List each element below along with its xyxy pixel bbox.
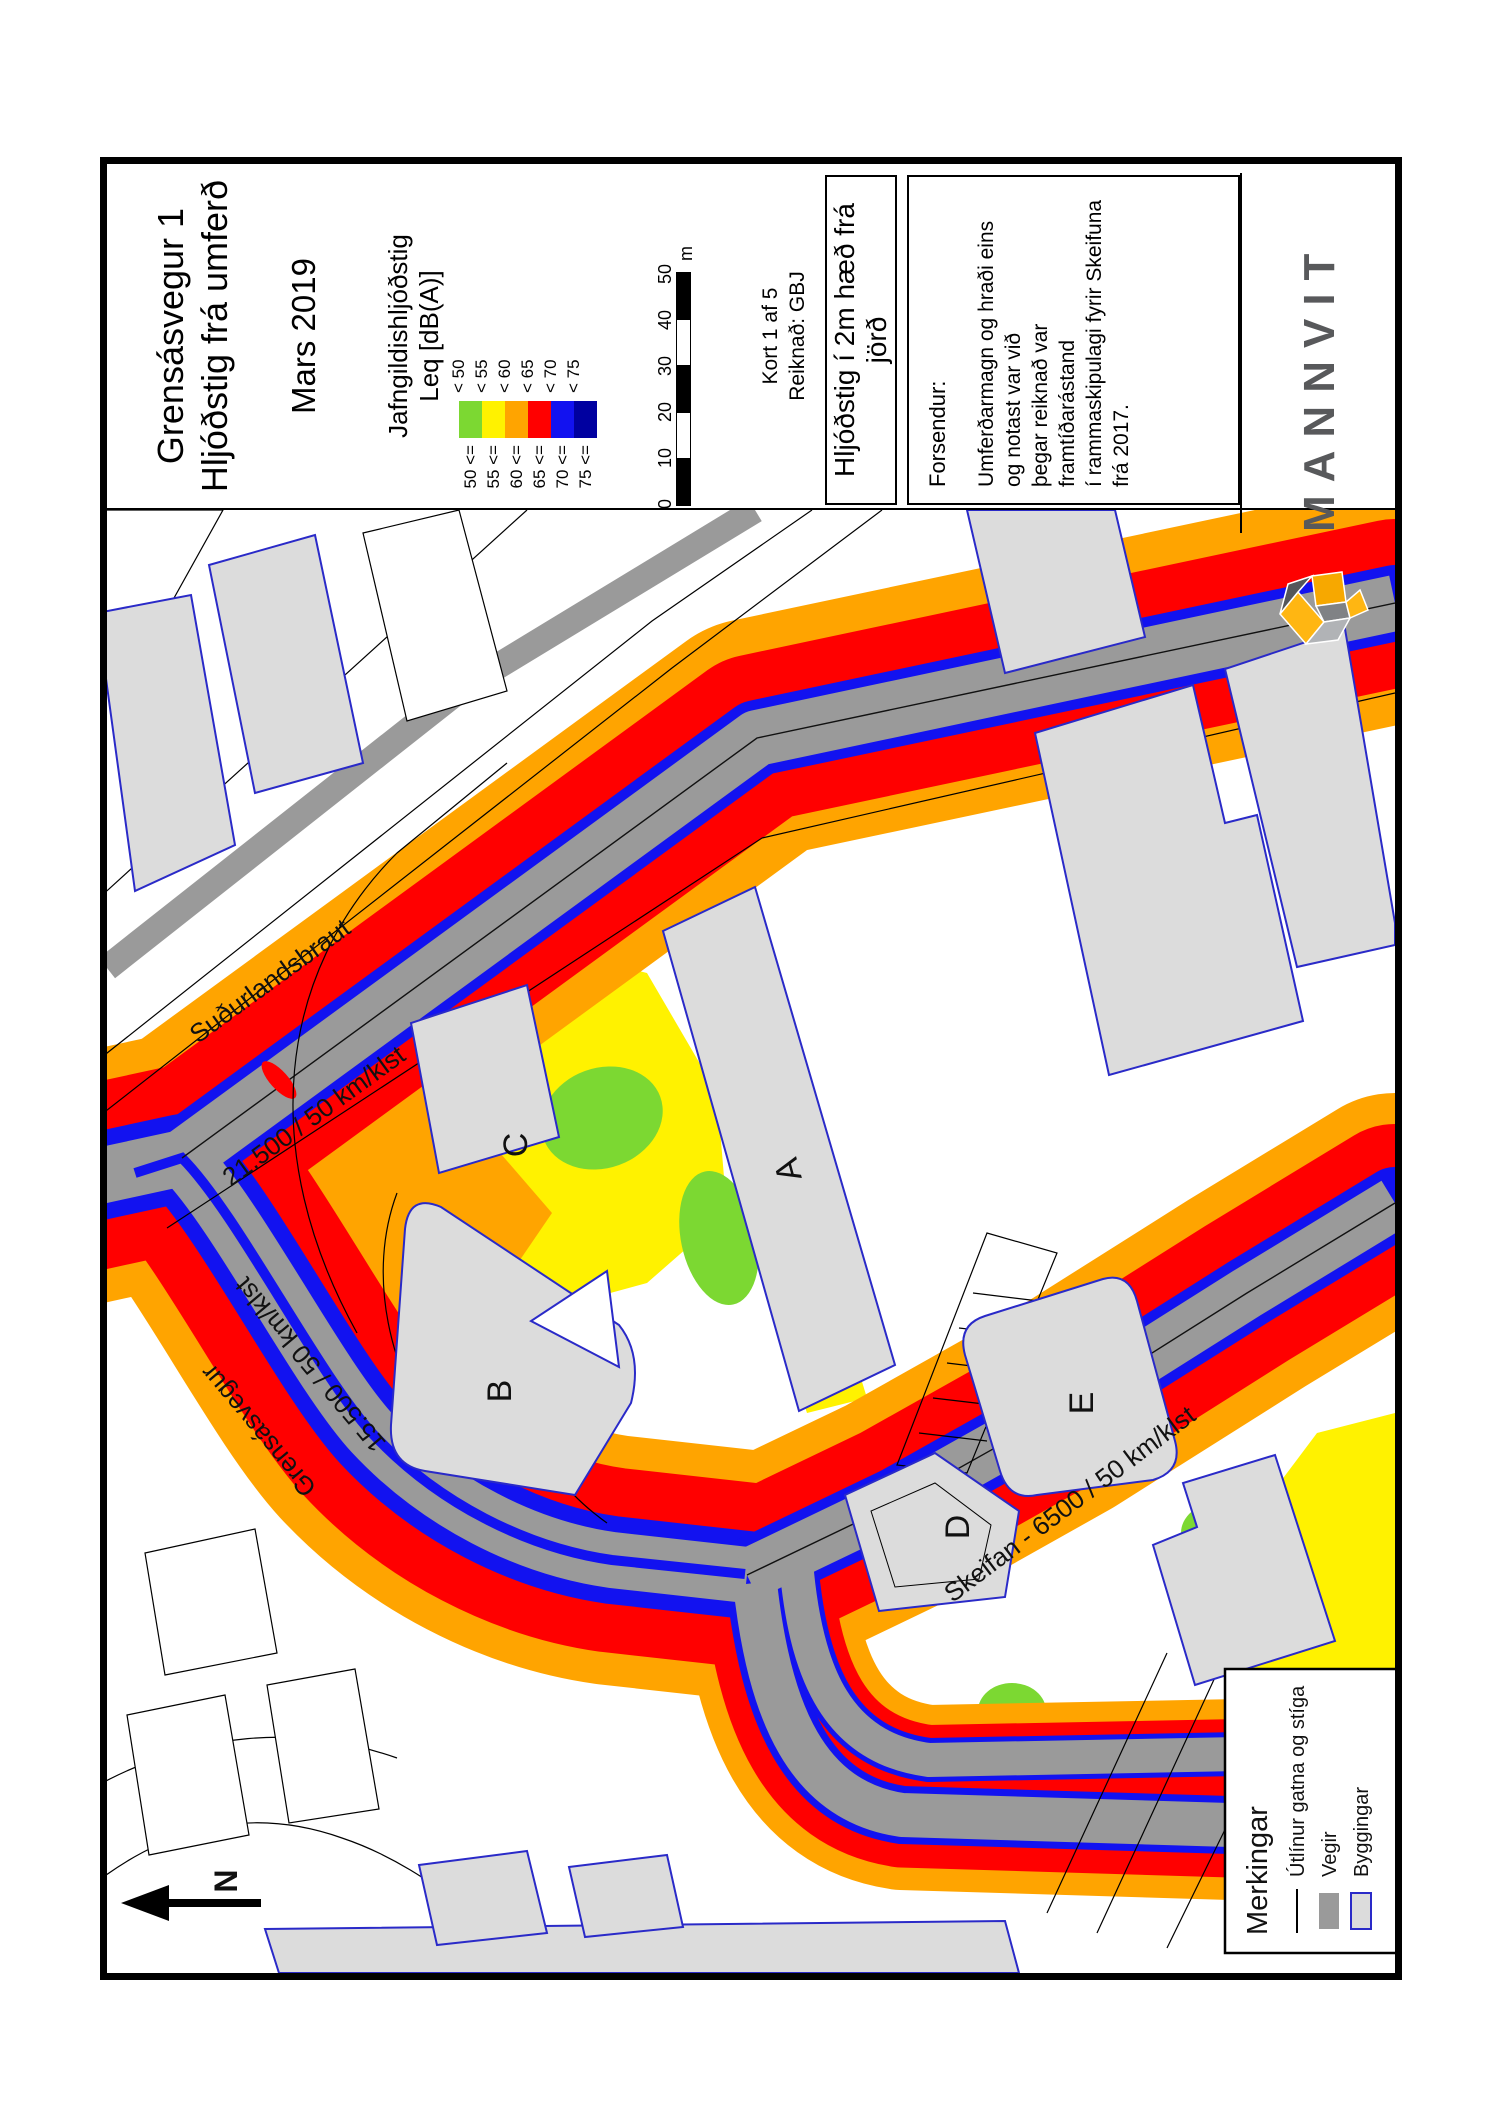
road-symbol-icon bbox=[1319, 1893, 1339, 1929]
legend-swatch bbox=[505, 401, 528, 438]
info-panel: Grensásvegur 1 Hljóðstig frá umferð Mars… bbox=[107, 164, 1395, 510]
scale-tick: 50 bbox=[655, 264, 676, 284]
scale-unit: m bbox=[676, 246, 697, 261]
legend-upper-label: < 55 bbox=[472, 359, 492, 401]
legend-lower-label: 70 <= bbox=[553, 438, 573, 508]
scale-tick: 10 bbox=[655, 448, 676, 468]
legend-upper-label: < 50 bbox=[449, 359, 469, 401]
legend-swatch bbox=[574, 401, 597, 438]
scale-segment bbox=[677, 458, 690, 505]
legend-upper-label: < 70 bbox=[541, 359, 561, 401]
sheet-frame: Suðurlandsbraut 21.500 / 50 km/klst Gren… bbox=[100, 157, 1402, 1980]
legend-upper-label: < 60 bbox=[495, 359, 515, 401]
assumptions-box: Forsendur: Umferðarmagn og hraði eins og… bbox=[907, 175, 1240, 505]
legend-title-line1: Jafngildishljóðstig bbox=[383, 164, 414, 508]
legend-lower-label: 50 <= bbox=[461, 438, 481, 508]
map-key-item-buildings: Byggingar bbox=[1351, 1787, 1373, 1877]
scale-ticks: 0 10 20 30 40 50 bbox=[655, 166, 673, 506]
legend-swatch bbox=[482, 401, 505, 438]
noise-legend: 50 <= < 50 55 <= < 55 60 <= < 60 65 <= <… bbox=[459, 164, 597, 508]
scale-tick: 40 bbox=[655, 310, 676, 330]
noise-map-canvas: Suðurlandsbraut 21.500 / 50 km/klst Gren… bbox=[107, 510, 1395, 1973]
legend-row: 50 <= < 50 bbox=[459, 164, 482, 508]
scale-tick: 0 bbox=[655, 499, 676, 509]
label-building-D: D bbox=[939, 1515, 977, 1540]
legend-swatch bbox=[528, 401, 551, 438]
scale-segment bbox=[677, 319, 690, 366]
building-symbol-icon bbox=[1351, 1893, 1371, 1929]
north-arrow-shaft bbox=[165, 1899, 261, 1907]
screenshot-page: Suðurlandsbraut 21.500 / 50 km/klst Gren… bbox=[0, 0, 1500, 2123]
sheet-number: Kort 1 af 5 Reiknað: GBJ bbox=[757, 164, 811, 508]
legend-swatch bbox=[551, 401, 574, 438]
label-building-B: B bbox=[481, 1380, 519, 1403]
assumptions-label: Forsendur: bbox=[925, 193, 951, 487]
assumptions-line: í rammaskipulagi fyrir Skeifuna frá 2017… bbox=[1081, 193, 1135, 487]
noise-map: Suðurlandsbraut 21.500 / 50 km/klst Gren… bbox=[107, 510, 1395, 1973]
legend-row: 65 <= < 65 bbox=[528, 164, 551, 508]
legend-lower-label: 55 <= bbox=[484, 438, 504, 508]
sheet-title-line1: Grensásvegur 1 bbox=[149, 164, 193, 508]
calculated-by: Reiknað: GBJ bbox=[784, 164, 811, 508]
legend-row: 70 <= < 70 bbox=[551, 164, 574, 508]
legend-lower-label: 60 <= bbox=[507, 438, 527, 508]
sheet-title-line2: Hljóðstig frá umferð bbox=[193, 164, 237, 508]
map-key-title: Merkingar bbox=[1242, 1806, 1274, 1935]
sheet-title: Grensásvegur 1 Hljóðstig frá umferð bbox=[149, 164, 237, 508]
legend-row: 60 <= < 60 bbox=[505, 164, 528, 508]
map-key: Merkingar Útlínur gatna og stíga Vegir B… bbox=[1225, 1669, 1395, 1953]
label-building-C: C bbox=[497, 1133, 535, 1158]
scale-segment bbox=[677, 365, 690, 412]
legend-row: 75 <= < 75 bbox=[574, 164, 597, 508]
legend-lower-label: 65 <= bbox=[530, 438, 550, 508]
logo-divider bbox=[1240, 173, 1242, 533]
legend-lower-label: 75 <= bbox=[576, 438, 596, 508]
mannvit-logo: MANNVIT bbox=[1257, 178, 1382, 658]
assumptions-line: Umferðarmagn og hraði eins og notast var… bbox=[973, 193, 1027, 487]
sheet-number-line: Kort 1 af 5 bbox=[757, 164, 784, 508]
legend-upper-label: < 75 bbox=[564, 359, 584, 401]
legend-swatch bbox=[459, 401, 482, 438]
legend-title: Jafngildishljóðstig Leq [dB(A)] bbox=[383, 164, 445, 508]
north-label: N bbox=[208, 1869, 244, 1892]
legend-upper-label: < 65 bbox=[518, 359, 538, 401]
scale-tick: 20 bbox=[655, 402, 676, 422]
scale-bar-segments bbox=[676, 272, 691, 506]
scale-tick: 30 bbox=[655, 356, 676, 376]
label-building-E: E bbox=[1063, 1392, 1101, 1415]
mannvit-hexagon-icon bbox=[1268, 558, 1372, 658]
legend-title-line2: Leq [dB(A)] bbox=[414, 164, 445, 508]
scale-bar: 0 10 20 30 40 50 m bbox=[655, 166, 701, 506]
scale-segment bbox=[677, 412, 690, 459]
map-key-item-roads: Vegir bbox=[1319, 1831, 1341, 1877]
mannvit-wordmark: MANNVIT bbox=[1295, 241, 1345, 532]
legend-row: 55 <= < 55 bbox=[482, 164, 505, 508]
sheet-date: Mars 2019 bbox=[285, 164, 323, 508]
scale-segment bbox=[677, 273, 690, 319]
landscape-sheet: Suðurlandsbraut 21.500 / 50 km/klst Gren… bbox=[0, 0, 1500, 2123]
map-subject-box: Hljóðstig í 2m hæð frá jörð bbox=[825, 175, 897, 505]
assumptions-line: þegar reiknað var framtíðarástand bbox=[1027, 193, 1081, 487]
map-key-item-outlines: Útlínur gatna og stíga bbox=[1286, 1685, 1309, 1877]
